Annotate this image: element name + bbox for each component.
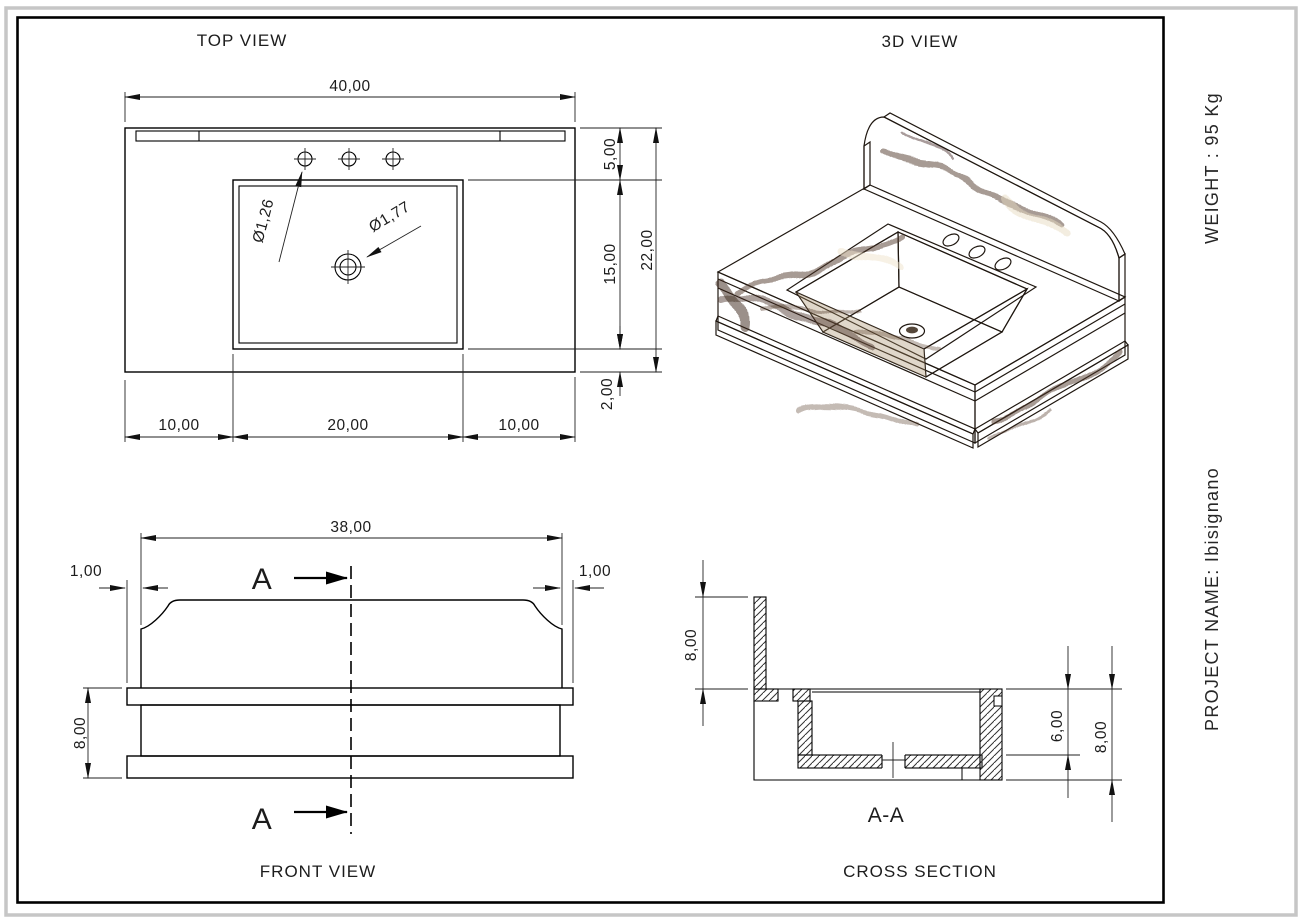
drawing-canvas: TOP VIEW Ø1,26 Ø1,77 bbox=[0, 0, 1304, 924]
section-notch-right bbox=[994, 696, 1002, 706]
svg-text:1,00: 1,00 bbox=[70, 563, 102, 580]
leader-drain-dia: Ø1,77 bbox=[366, 198, 421, 257]
backsplash-top-edge bbox=[884, 113, 1125, 258]
three-d-view-title: 3D VIEW bbox=[882, 32, 959, 51]
drain-hole-plan bbox=[331, 250, 365, 284]
section-base-step bbox=[962, 768, 980, 780]
svg-text:40,00: 40,00 bbox=[329, 78, 370, 95]
svg-text:38,00: 38,00 bbox=[330, 519, 371, 536]
dim-top-width: 40,00 bbox=[125, 78, 575, 122]
page-border bbox=[6, 8, 1296, 915]
dim-section-height: 8,00 bbox=[1093, 721, 1110, 753]
section-rim-left-a bbox=[754, 689, 778, 701]
dim-front-height: 8,00 bbox=[72, 688, 122, 778]
faucet-holes-plan bbox=[294, 148, 404, 170]
section-marker-top: A bbox=[252, 563, 273, 596]
dim-section-splash-height: 8,00 bbox=[683, 560, 748, 726]
dim-section-right: 6,00 8,00 bbox=[1006, 646, 1122, 822]
backsplash-left-cap bbox=[864, 142, 870, 189]
dim-right-margin: 10,00 bbox=[498, 417, 539, 434]
title-block-strip: WEIGHT : 95 Kg PROJECT NAME: Ibisignano bbox=[1202, 92, 1222, 731]
dim-depth-total: 22,00 bbox=[639, 229, 656, 270]
dim-sink-depth: 15,00 bbox=[602, 243, 619, 284]
svg-text:8,00: 8,00 bbox=[72, 717, 89, 749]
drawing-sheet: TOP VIEW Ø1,26 Ø1,77 bbox=[0, 0, 1304, 924]
section-bowl-wall-left bbox=[798, 701, 812, 755]
drain-dia-label: Ø1,77 bbox=[366, 198, 413, 236]
dim-front-offset: 2,00 bbox=[599, 378, 616, 410]
top-view-title: TOP VIEW bbox=[197, 31, 288, 50]
drain-hole-center-3d bbox=[906, 327, 918, 334]
weight-label: WEIGHT : 95 Kg bbox=[1202, 92, 1222, 244]
dim-right-inset: 1,00 bbox=[533, 563, 611, 683]
cross-section-title: CROSS SECTION bbox=[843, 862, 997, 881]
three-d-view: 3D VIEW bbox=[716, 32, 1128, 448]
front-view-title: FRONT VIEW bbox=[260, 862, 376, 881]
dim-bowl-depth: 6,00 bbox=[1049, 710, 1066, 742]
section-drain-gap bbox=[882, 754, 905, 769]
faucet-dia-label: Ø1,26 bbox=[250, 197, 278, 245]
front-view: FRONT VIEW A A 38,00 1,00 1, bbox=[70, 519, 611, 881]
svg-text:1,00: 1,00 bbox=[579, 563, 611, 580]
section-label: A-A bbox=[868, 804, 905, 827]
dim-top-right-chain: 5,00 15,00 2,00 22,00 bbox=[468, 128, 662, 410]
base-band-front bbox=[127, 756, 573, 778]
countertop-outline-plan bbox=[125, 128, 575, 372]
section-backsplash bbox=[754, 597, 766, 689]
dim-top-bottom-chain: 10,00 20,00 10,00 bbox=[125, 354, 575, 442]
sink-wall-back bbox=[898, 232, 1027, 332]
top-view: TOP VIEW Ø1,26 Ø1,77 bbox=[125, 31, 662, 442]
project-name-label: PROJECT NAME: Ibisignano bbox=[1202, 467, 1222, 731]
svg-text:8,00: 8,00 bbox=[683, 629, 700, 661]
section-rim-left-b bbox=[793, 689, 810, 701]
section-marker-bottom: A bbox=[252, 803, 273, 836]
backsplash-strip-plan bbox=[136, 131, 565, 141]
dim-sink-width: 20,00 bbox=[327, 417, 368, 434]
backsplash-right-cap bbox=[1119, 254, 1125, 301]
dim-back-offset: 5,00 bbox=[602, 138, 619, 170]
slab-band-front bbox=[127, 688, 573, 705]
marble-veins bbox=[722, 132, 1120, 437]
dim-left-margin: 10,00 bbox=[158, 417, 199, 434]
cross-section-view: CROSS SECTION 8,00 bbox=[683, 560, 1122, 881]
